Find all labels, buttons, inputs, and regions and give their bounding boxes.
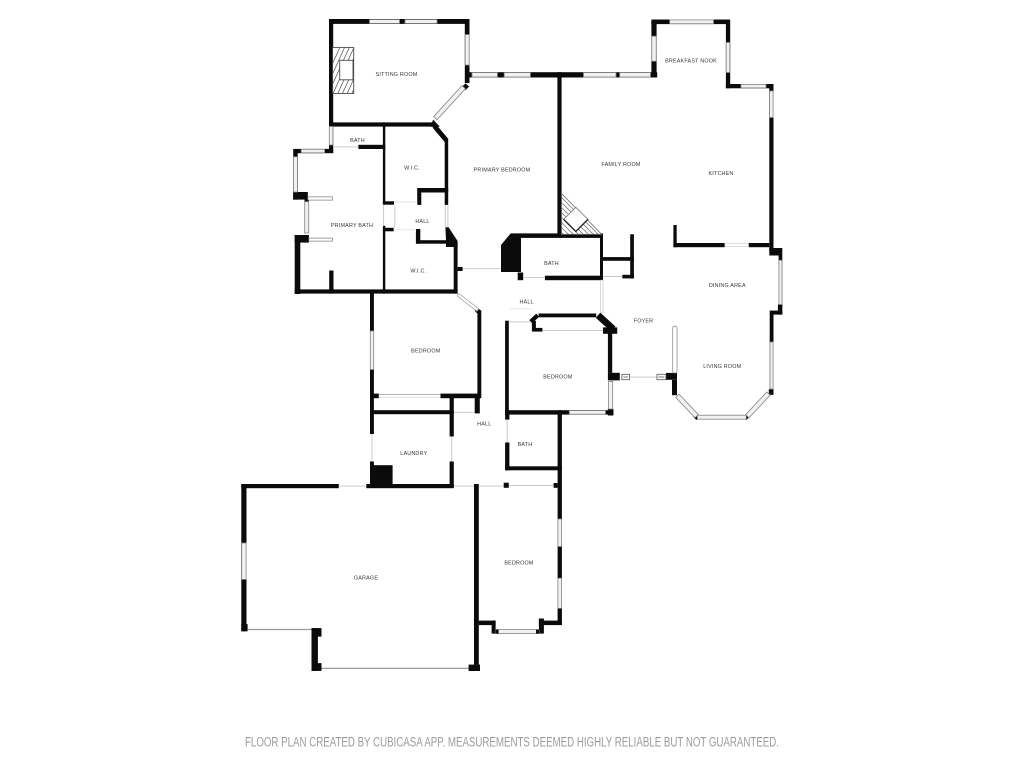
svg-text:HALL: HALL bbox=[415, 219, 429, 225]
svg-text:FOYER: FOYER bbox=[634, 319, 654, 325]
svg-text:PRIMARY BEDROOM: PRIMARY BEDROOM bbox=[474, 168, 531, 174]
svg-text:PRIMARY BATH: PRIMARY BATH bbox=[331, 223, 373, 229]
svg-text:HALL: HALL bbox=[477, 422, 491, 428]
svg-text:HALL: HALL bbox=[519, 300, 533, 306]
svg-text:BEDROOM: BEDROOM bbox=[504, 561, 534, 567]
svg-text:SITTING ROOM: SITTING ROOM bbox=[376, 72, 418, 78]
svg-text:BREAKFAST NOOK: BREAKFAST NOOK bbox=[665, 59, 717, 65]
svg-text:DINING AREA: DINING AREA bbox=[709, 283, 746, 289]
svg-text:BEDROOM: BEDROOM bbox=[543, 375, 573, 381]
svg-text:BEDROOM: BEDROOM bbox=[411, 349, 441, 355]
svg-text:FLOOR PLAN CREATED BY CUBICASA: FLOOR PLAN CREATED BY CUBICASA APP. MEAS… bbox=[245, 735, 779, 751]
svg-text:BATH: BATH bbox=[518, 442, 533, 448]
svg-text:BATH: BATH bbox=[544, 261, 559, 267]
svg-text:FAMILY ROOM: FAMILY ROOM bbox=[601, 162, 640, 168]
svg-text:LAUNDRY: LAUNDRY bbox=[400, 451, 427, 457]
svg-text:GARAGE: GARAGE bbox=[354, 576, 378, 582]
svg-text:W.I.C.: W.I.C. bbox=[410, 269, 426, 275]
svg-text:KITCHEN: KITCHEN bbox=[708, 171, 733, 177]
svg-text:W.I.C.: W.I.C. bbox=[404, 166, 420, 172]
svg-text:LIVING ROOM: LIVING ROOM bbox=[703, 364, 741, 370]
svg-text:BATH: BATH bbox=[350, 138, 365, 144]
